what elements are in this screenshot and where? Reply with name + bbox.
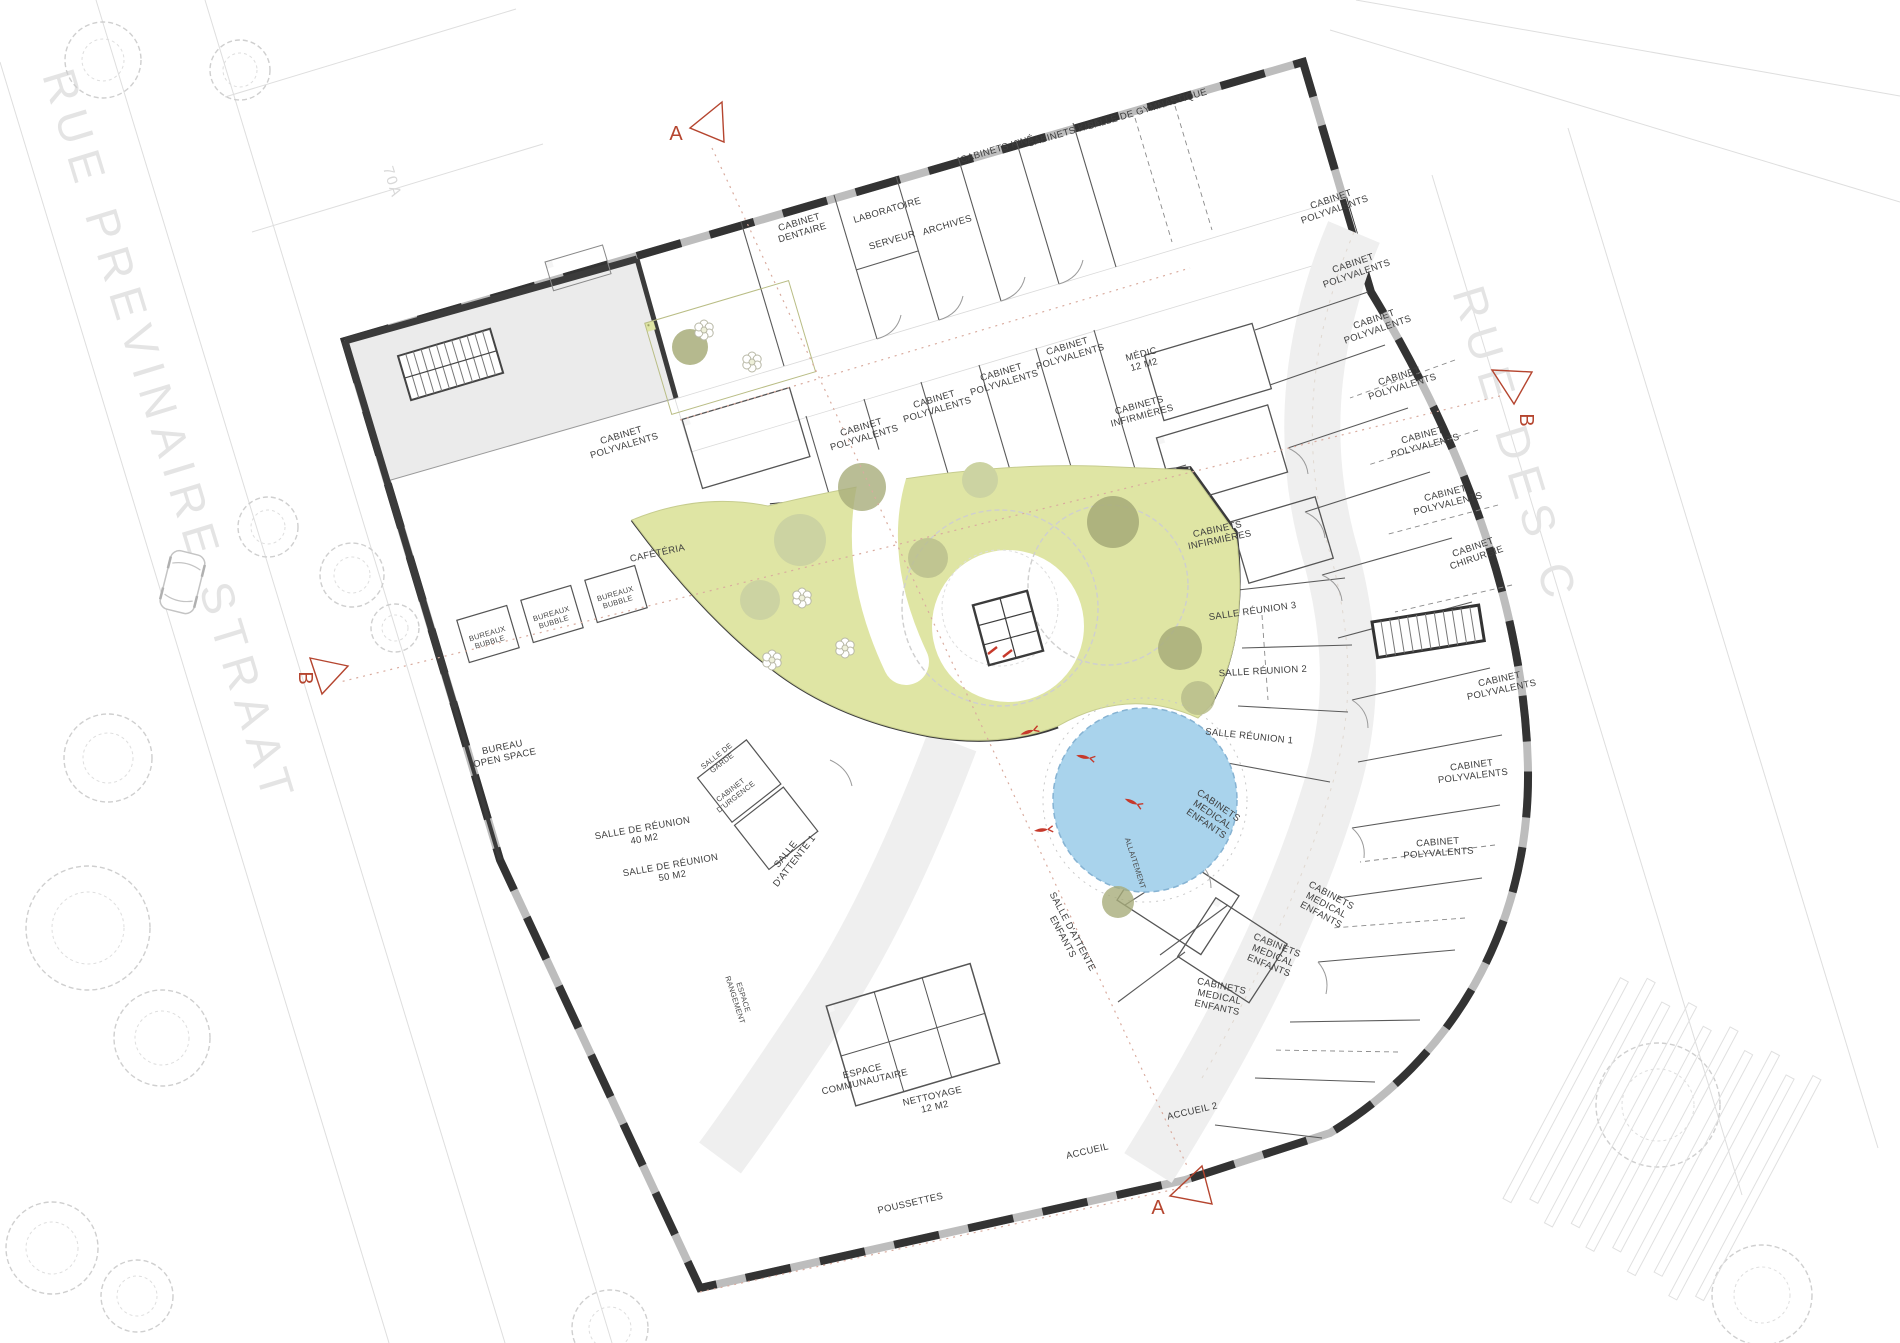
tree-icon <box>101 1260 173 1332</box>
parcel-line <box>1568 128 1878 1148</box>
section-letter-a: A <box>1151 1197 1165 1219</box>
shrub-icon <box>838 463 886 511</box>
shrub-icon <box>1158 626 1202 670</box>
shrub-icon <box>962 462 998 498</box>
section-letter-a: A <box>669 123 683 145</box>
tree-icon <box>238 497 298 557</box>
shrub-icon <box>1181 681 1215 715</box>
street-name-left: RUE PREVINAIRE STRAAT <box>32 63 306 813</box>
section-letter-b: B <box>294 671 316 684</box>
tree-icon <box>6 1202 98 1294</box>
floor-plan: RUE PREVINAIRE STRAAT RUE DES C 70A <box>0 0 1900 1343</box>
shrub-icon <box>1102 886 1134 918</box>
shrub-icon <box>1087 496 1139 548</box>
tree-icon <box>26 866 150 990</box>
parcel-line <box>1330 30 1900 202</box>
landscape-strips <box>1499 967 1824 1311</box>
parcel-number: 70A <box>379 164 405 200</box>
tree-icon <box>65 22 141 98</box>
flower-icon <box>695 320 713 340</box>
tree-icon <box>114 990 210 1086</box>
shrub-icon <box>740 580 780 620</box>
section-marker-a-top: A <box>669 102 724 145</box>
flower-icon <box>836 638 854 658</box>
tree-icon <box>320 543 384 607</box>
shrub-icon <box>774 514 826 566</box>
section-marker-b-left: B <box>294 658 348 694</box>
parcel-line <box>225 9 516 97</box>
flower-icon <box>793 588 811 608</box>
flower-icon <box>743 352 761 372</box>
parcel-line <box>1356 0 1900 96</box>
tree-icon <box>1712 1245 1812 1343</box>
flower-icon <box>763 650 781 670</box>
tree-icon <box>1596 1043 1720 1167</box>
tree-icon <box>64 714 152 802</box>
parcel-line <box>0 62 389 1343</box>
tree-icon <box>210 40 270 100</box>
section-letter-b: B <box>1515 413 1537 426</box>
shrub-icon <box>908 538 948 578</box>
